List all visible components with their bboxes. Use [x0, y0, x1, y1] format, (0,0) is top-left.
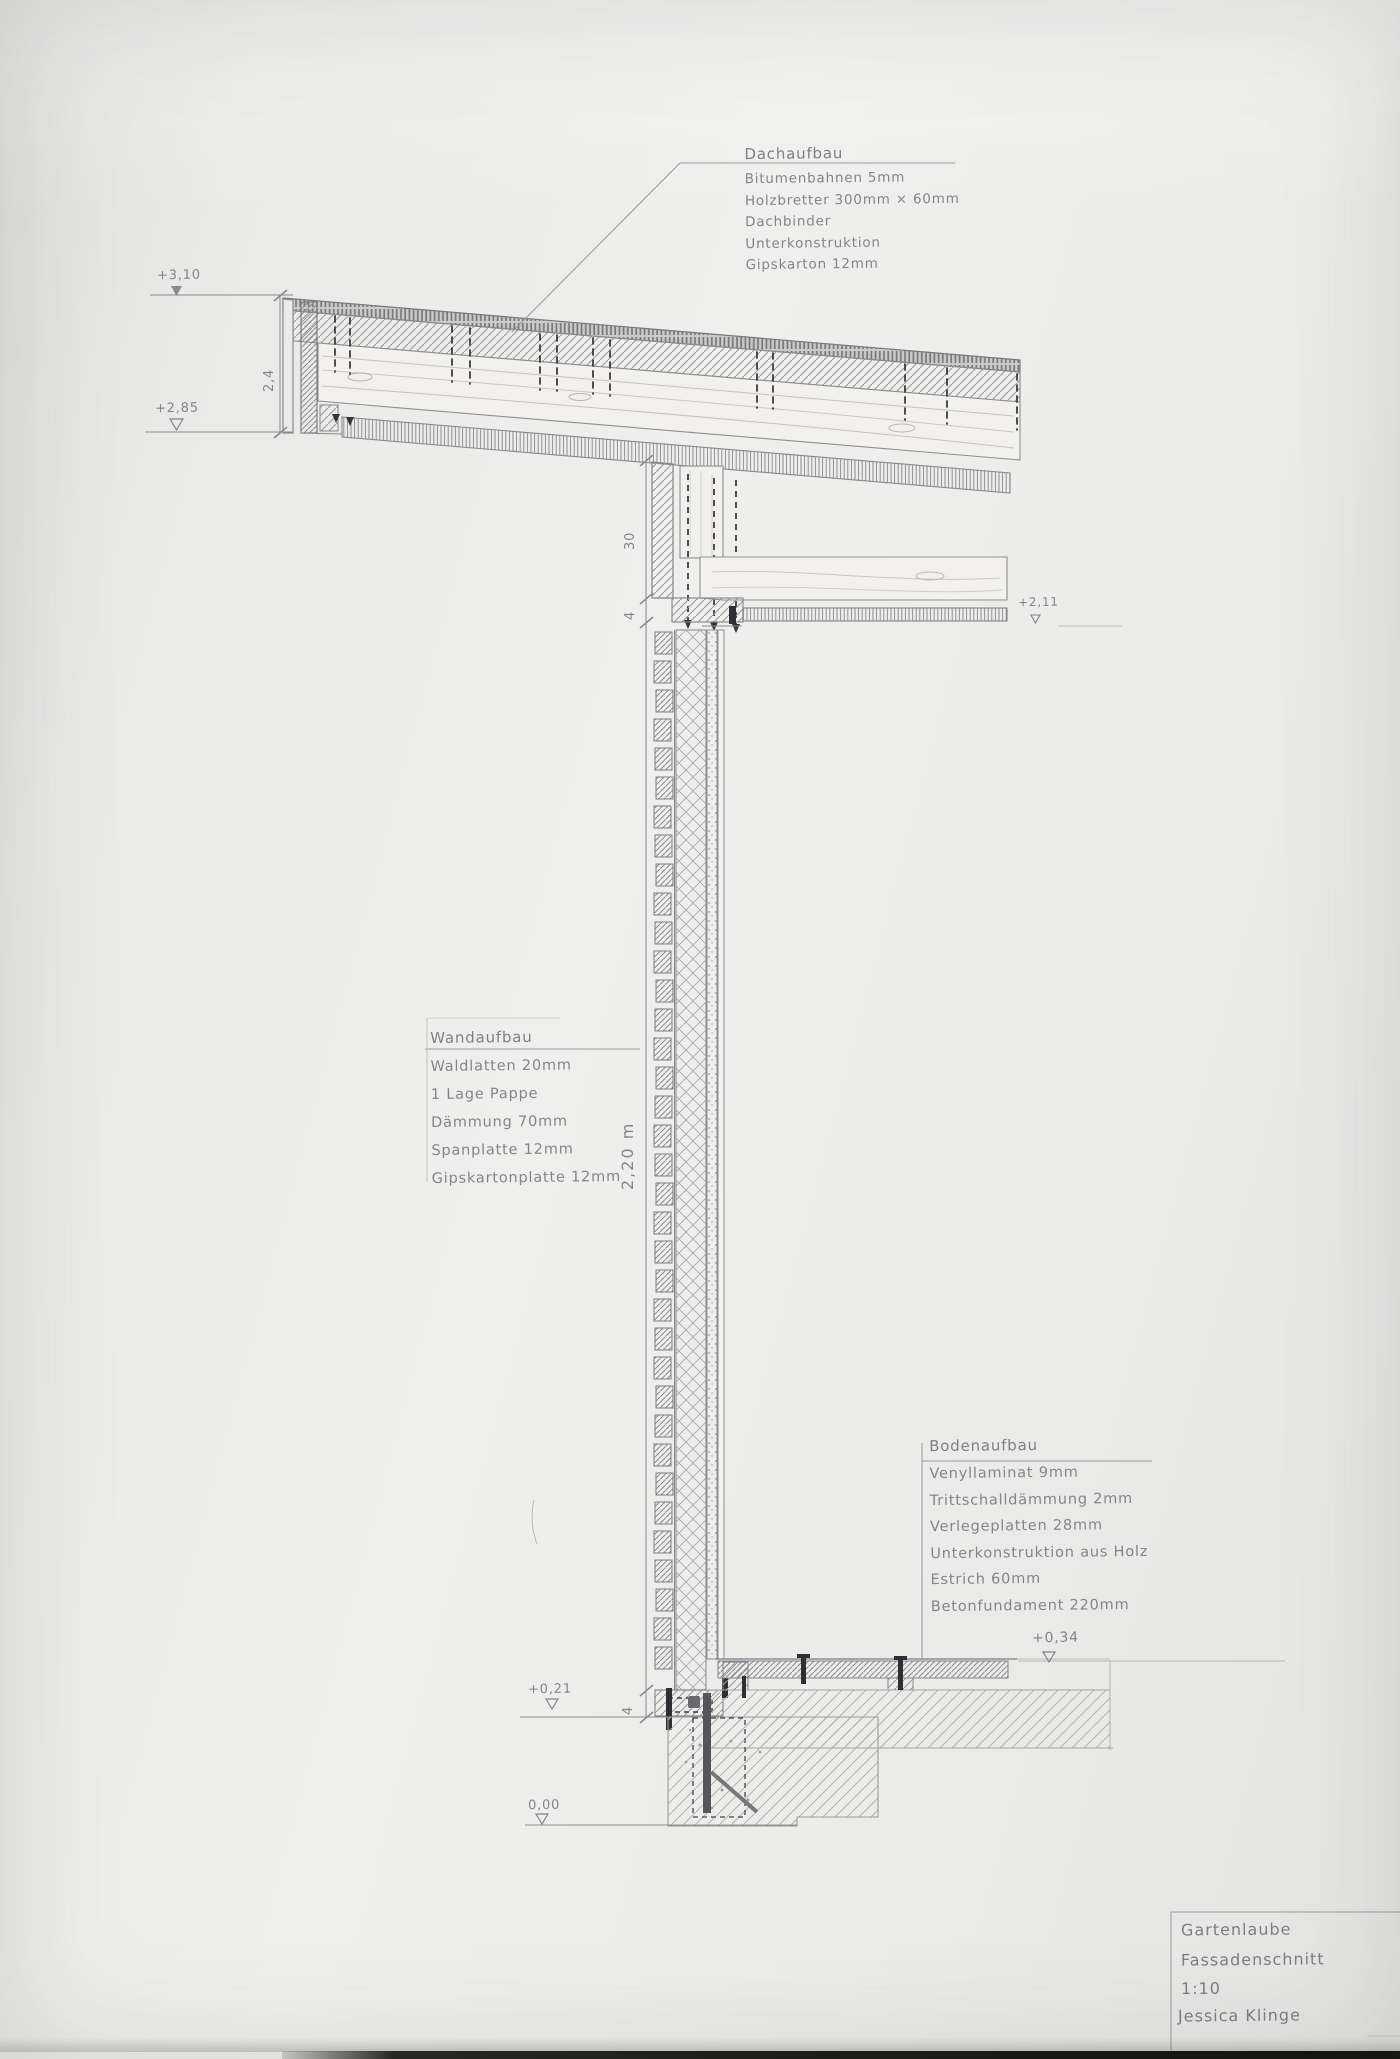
annotation-boden-title: Bodenaufbau: [929, 1435, 1147, 1455]
annotation-boden: Bodenaufbau Venyllaminat 9mm Trittschall…: [929, 1435, 1149, 1620]
dim-roof-edge: 2,4: [262, 369, 277, 392]
titleblock-scale: 1:10: [1181, 1979, 1221, 1998]
annotation-line: Spanplatte 12mm: [431, 1135, 621, 1165]
wall-assembly: [654, 630, 748, 1730]
dim-wall-head: 30: [623, 532, 638, 550]
wall-battens: [654, 632, 673, 1669]
annotation-line: Gipskarton 12mm: [745, 253, 960, 277]
ceiling-assembly: [672, 557, 1122, 626]
level-marker-icon: [170, 419, 183, 430]
annotation-wand: Wandaufbau Waldlatten 20mm 1 Lage Pappe …: [430, 1027, 621, 1193]
annotation-line: Unterkonstruktion aus Holz: [930, 1538, 1148, 1567]
annotation-dach: Dachaufbau Bitumenbahnen 5mm Holzbretter…: [744, 143, 960, 277]
annotation-line: Waldlatten 20mm: [430, 1051, 620, 1081]
level-foundation-base: 0,00: [528, 1798, 560, 1814]
dim-base-plate: 4: [621, 1706, 636, 1715]
annotation-line: Estrich 60mm: [930, 1565, 1148, 1594]
titleblock-author: Jessica Klinge: [1178, 2005, 1301, 2025]
annotation-line: Dachbinder: [745, 210, 960, 234]
annotation-line: Verlegeplatten 28mm: [930, 1512, 1148, 1541]
titleblock-project: Gartenlaube: [1181, 1920, 1292, 1940]
level-ceiling: +2,11: [1018, 595, 1059, 610]
annotation-line: Betonfundament 220mm: [931, 1591, 1149, 1620]
annotation-line: Gipskartonplatte 12mm: [432, 1163, 622, 1193]
annotation-line: Venyllaminat 9mm: [929, 1459, 1147, 1488]
annotation-line: Trittschalldämmung 2mm: [930, 1485, 1148, 1514]
annotation-line: Dämmung 70mm: [431, 1107, 621, 1137]
level-floor: +0,34: [1032, 1630, 1079, 1647]
annotation-wand-title: Wandaufbau: [430, 1027, 619, 1047]
photo-shadow: [0, 2038, 1400, 2052]
drawing-sheet: +3,10 +2,85 +2,11 +0,34 +0,21 0,00 2,4 3…: [0, 0, 1400, 2059]
photo-edge: [282, 2051, 1400, 2059]
annotation-line: 1 Lage Pappe: [431, 1079, 621, 1109]
annotation-line: Holzbretter 300mm × 60mm: [745, 188, 960, 212]
annotation-dach-title: Dachaufbau: [744, 143, 959, 163]
level-marker-icon: [536, 1814, 548, 1824]
level-roof-top: +3,10: [157, 268, 201, 284]
level-marker-icon: [546, 1699, 558, 1709]
annotation-line: Unterkonstruktion: [745, 231, 960, 255]
titleblock-drawing: Fassadenschnitt: [1181, 1949, 1325, 1969]
level-roof-eave: +2,85: [155, 401, 199, 417]
level-marker-icon: [1031, 615, 1040, 623]
section-drawing: [0, 0, 1400, 2059]
annotation-line: Bitumenbahnen 5mm: [745, 167, 960, 191]
level-plinth: +0,21: [528, 1682, 572, 1698]
dim-ceiling-pkg: 4: [623, 611, 638, 620]
